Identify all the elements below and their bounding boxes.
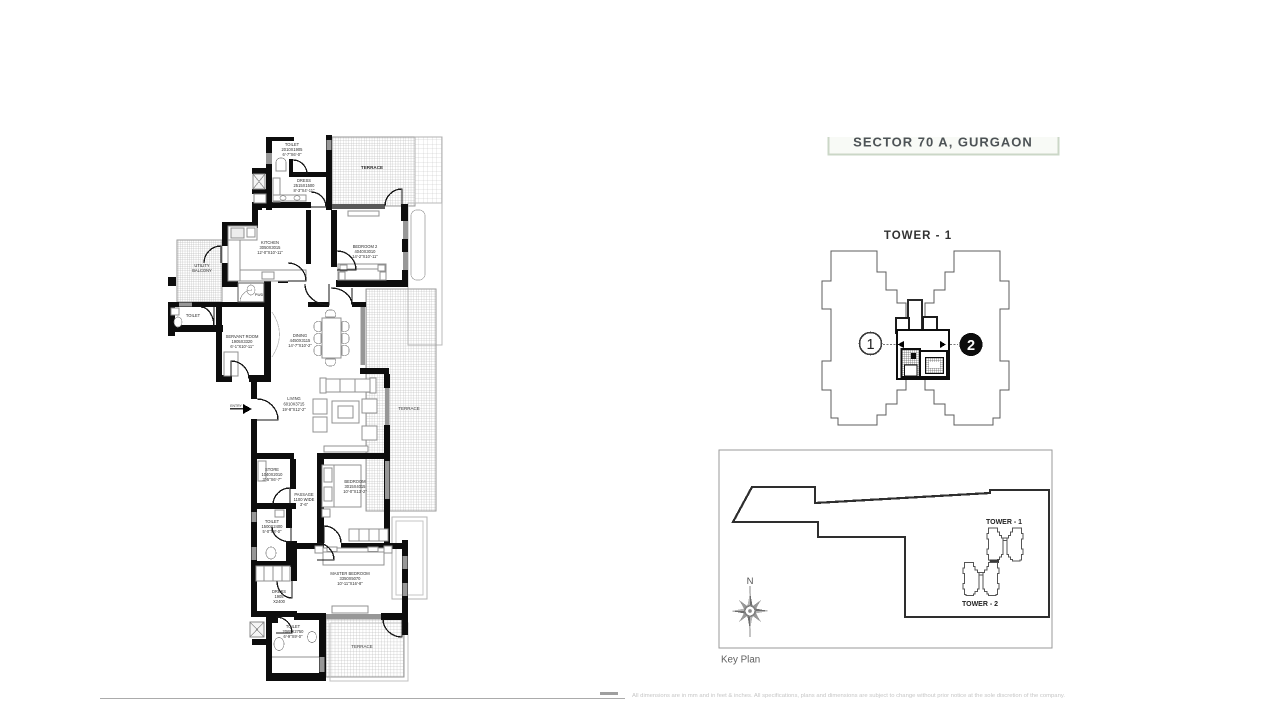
svg-text:6010X3715: 6010X3715 — [284, 402, 306, 407]
svg-text:TOWER - 1: TOWER - 1 — [884, 230, 952, 242]
svg-text:TOILET: TOILET — [186, 313, 201, 318]
svg-text:6'-7"X6'-0": 6'-7"X6'-0" — [282, 152, 302, 157]
svg-text:TOWER - 1: TOWER - 1 — [986, 519, 1022, 526]
svg-text:3'-6": 3'-6" — [300, 502, 309, 507]
svg-text:N: N — [747, 576, 754, 587]
svg-text:5'-0"X8'-0": 5'-0"X8'-0" — [262, 529, 282, 534]
svg-text:PWD: PWD — [255, 293, 264, 297]
svg-text:LIVING: LIVING — [287, 396, 300, 401]
svg-text:TOWER - 2: TOWER - 2 — [962, 601, 998, 608]
svg-text:19'-8"X12'-2": 19'-8"X12'-2" — [282, 407, 306, 412]
svg-text:12'-0"X10'-11": 12'-0"X10'-11" — [257, 250, 283, 255]
svg-text:14'-2"X10'-11": 14'-2"X10'-11" — [352, 254, 378, 259]
svg-text:8'-3"X4'-11": 8'-3"X4'-11" — [293, 188, 315, 193]
svg-text:10'-0"X13'-2": 10'-0"X13'-2" — [343, 489, 367, 494]
svg-text:2: 2 — [967, 338, 975, 354]
svg-text:14'-7"X10'-2": 14'-7"X10'-2" — [288, 343, 312, 348]
svg-text:6'-9"X9'-0": 6'-9"X9'-0" — [283, 634, 303, 639]
svg-text:10'-11"X16'-8": 10'-11"X16'-8" — [337, 581, 363, 586]
svg-text:BALCONY: BALCONY — [192, 268, 212, 273]
svg-text:TERRACE: TERRACE — [398, 406, 420, 411]
svg-text:TERRACE: TERRACE — [351, 644, 373, 649]
svg-text:All dimensions are in mm and i: All dimensions are in mm and in feet & i… — [632, 693, 1065, 699]
svg-text:TERRACE: TERRACE — [361, 165, 383, 170]
svg-text:3'-5"X6'-7": 3'-5"X6'-7" — [262, 477, 282, 482]
svg-text:X2400: X2400 — [273, 599, 286, 604]
svg-text:6'-1"X10'-11": 6'-1"X10'-11" — [230, 344, 254, 349]
svg-text:ENTRY: ENTRY — [230, 404, 242, 408]
svg-text:Key Plan: Key Plan — [721, 655, 760, 666]
svg-text:1: 1 — [866, 337, 874, 353]
